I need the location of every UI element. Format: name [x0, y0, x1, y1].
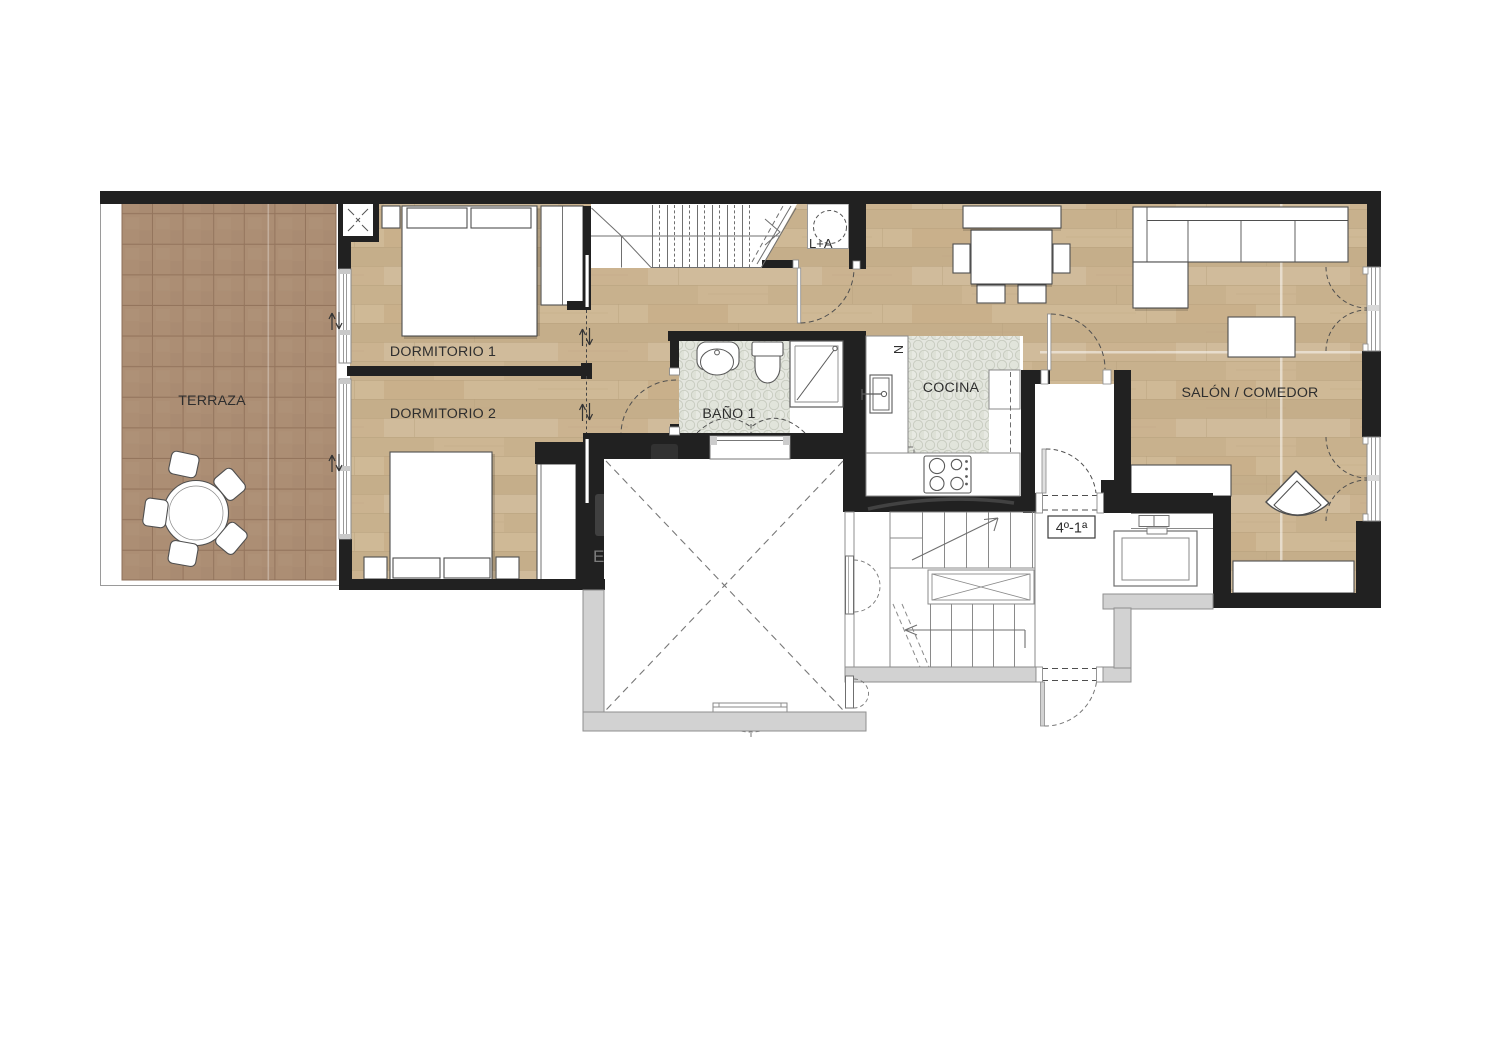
svg-text:BAÑO 1: BAÑO 1 [702, 405, 755, 422]
svg-text:N: N [891, 345, 905, 354]
svg-text:COCINA: COCINA [923, 380, 980, 396]
svg-text:E: E [593, 547, 604, 566]
svg-text:TERRAZA: TERRAZA [178, 393, 246, 409]
svg-text:SALÓN / COMEDOR: SALÓN / COMEDOR [1181, 384, 1318, 401]
svg-text:4º-1ª: 4º-1ª [1056, 521, 1088, 537]
svg-text:L+A: L+A [809, 236, 833, 251]
svg-text:DORMITORIO 1: DORMITORIO 1 [390, 344, 496, 360]
svg-text:DORMITORIO 2: DORMITORIO 2 [390, 406, 496, 422]
